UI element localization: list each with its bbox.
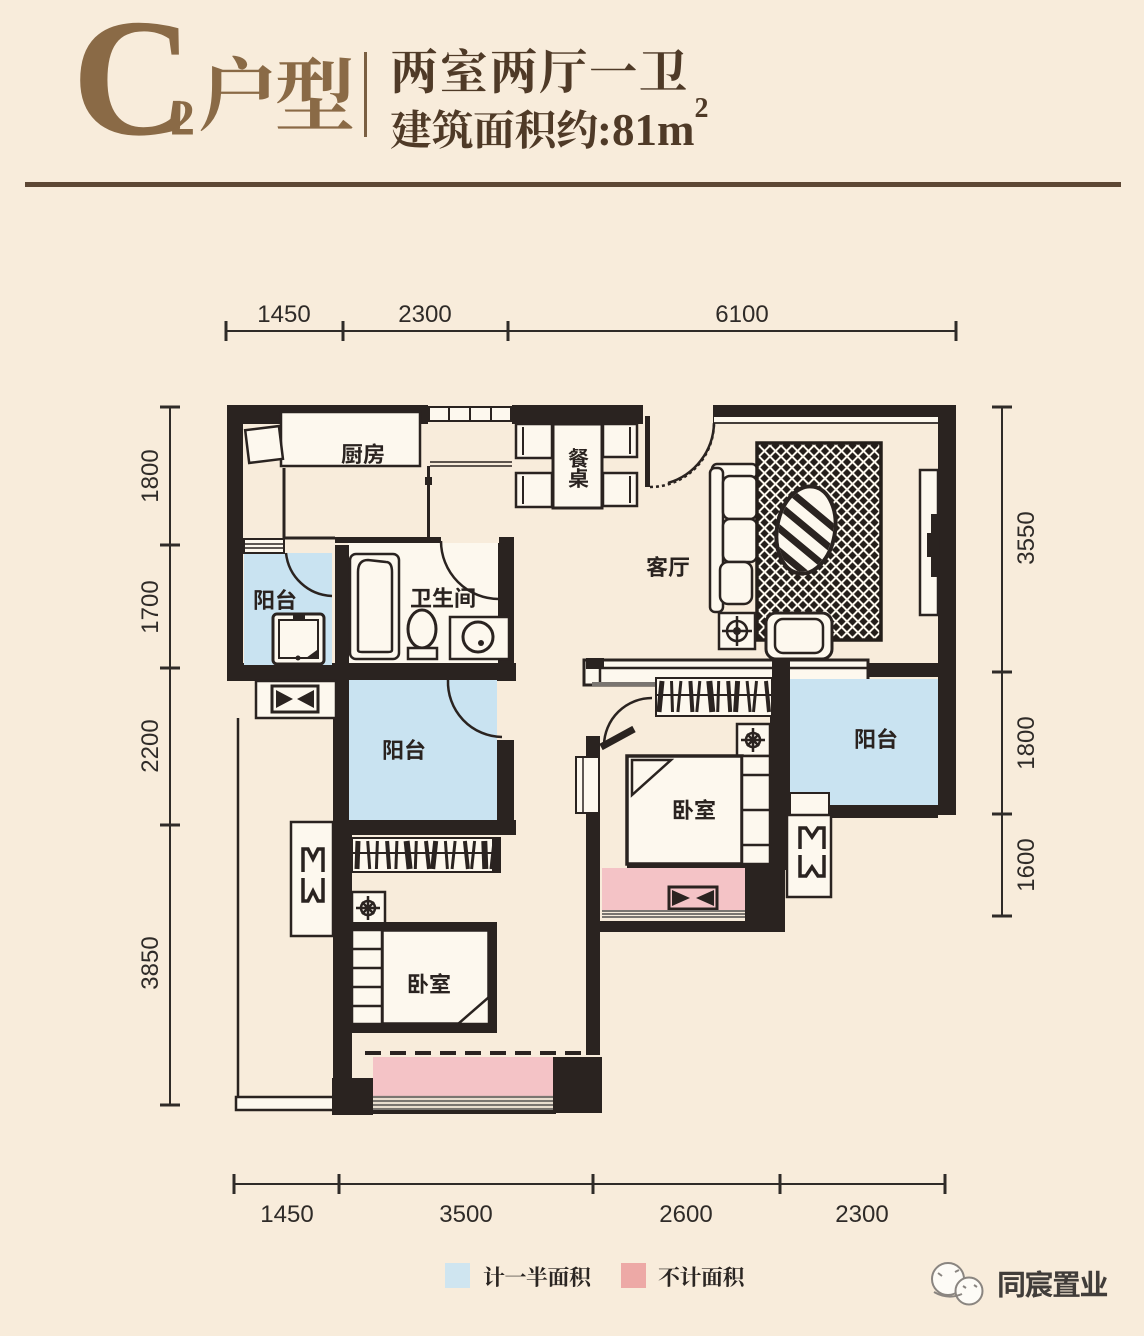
svg-text:2: 2	[170, 89, 195, 145]
svg-text:3850: 3850	[137, 936, 164, 989]
svg-text:3500: 3500	[439, 1201, 492, 1228]
svg-text:1600: 1600	[1013, 838, 1040, 891]
svg-text:2600: 2600	[659, 1201, 712, 1228]
svg-text:1800: 1800	[137, 449, 164, 502]
svg-text:2300: 2300	[398, 301, 451, 328]
svg-text:2200: 2200	[137, 719, 164, 772]
svg-text:6100: 6100	[715, 301, 768, 328]
svg-text:1450: 1450	[260, 1201, 313, 1228]
svg-text:2300: 2300	[835, 1201, 888, 1228]
svg-text:1700: 1700	[137, 580, 164, 633]
svg-text:1800: 1800	[1013, 716, 1040, 769]
svg-text:1450: 1450	[257, 301, 310, 328]
svg-text:C: C	[72, 0, 193, 171]
svg-text:3550: 3550	[1013, 511, 1040, 564]
